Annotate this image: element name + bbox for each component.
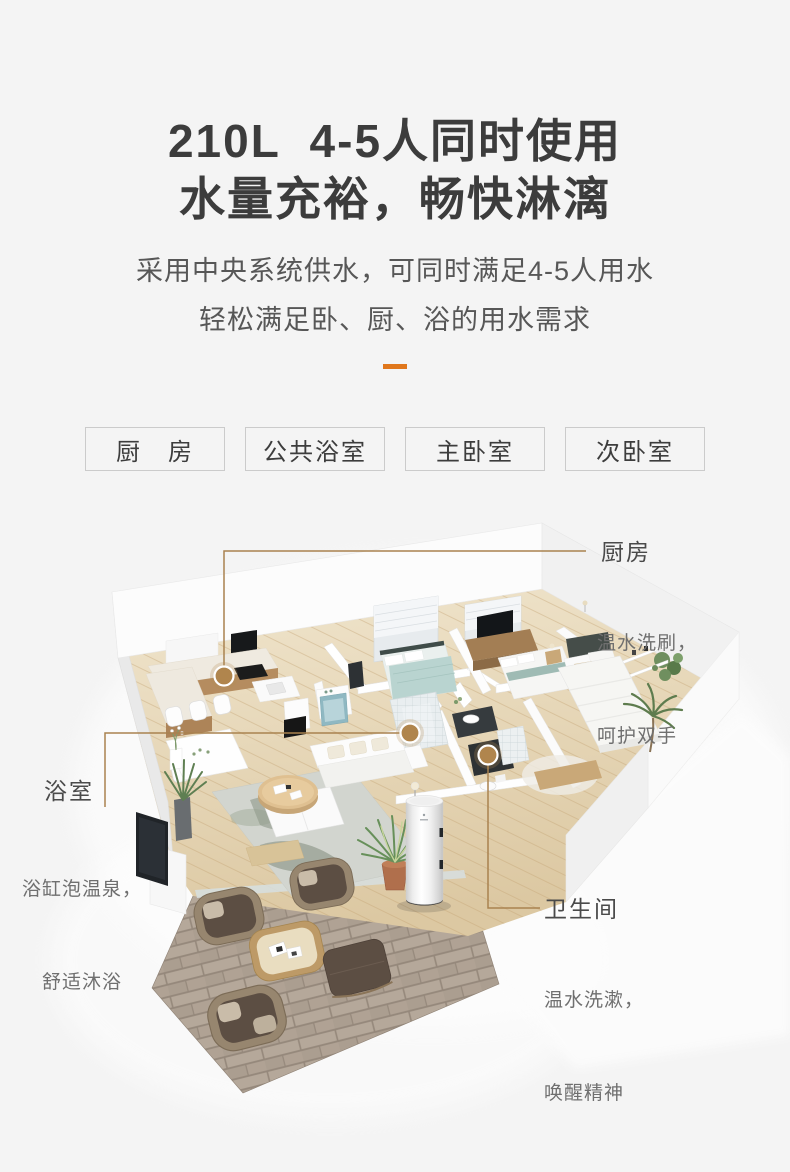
tag-master-bedroom: 主卧室 xyxy=(405,427,545,471)
tag-kitchen: 厨 房 xyxy=(85,427,225,471)
tag-second-bedroom: 次卧室 xyxy=(565,427,705,471)
title-line-1: 210L 4-5人同时使用 xyxy=(0,112,790,170)
description-line-2: 轻松满足卧、厨、浴的用水需求 xyxy=(0,296,790,345)
bathroom-marker xyxy=(396,719,424,747)
toilet-callout-sub: 温水洗漱， 唤醒精神 xyxy=(544,923,644,1140)
toilet-callout-line2: 唤醒精神 xyxy=(544,1078,644,1109)
kitchen-callout-line1: 温水洗刷， xyxy=(597,628,697,659)
tag-public-bathroom: 公共浴室 xyxy=(245,427,385,471)
kitchen-callout-line2: 呵护双手 xyxy=(597,721,697,752)
bathroom-callout-sub: 浴缸泡温泉， 舒适沐浴 xyxy=(6,812,158,1029)
title-line-2: 水量充裕，畅快淋漓 xyxy=(0,170,790,228)
product-detail-page: { "page": { "background": "#f4f4f4", "ac… xyxy=(0,0,790,1172)
bathroom-callout-line2: 舒适沐浴 xyxy=(6,967,158,998)
page-description: 采用中央系统供水，可同时满足4-5人用水 轻松满足卧、厨、浴的用水需求 xyxy=(0,247,790,345)
hallway-sideboard xyxy=(316,685,352,726)
toilet-callout-line1: 温水洗漱， xyxy=(544,985,644,1016)
room-tags: 厨 房 公共浴室 主卧室 次卧室 xyxy=(0,427,790,471)
kitchen-callout-sub: 温水洗刷， 呵护双手 xyxy=(597,566,697,783)
bathroom-callout-title: 浴室 xyxy=(44,772,94,806)
kitchen-callout-title: 厨房 xyxy=(601,533,651,567)
floor-vase xyxy=(174,797,192,841)
page-title: 210L 4-5人同时使用 水量充裕，畅快淋漓 xyxy=(0,112,790,228)
toilet-marker xyxy=(474,741,502,769)
accent-divider xyxy=(383,364,407,369)
kitchen-marker xyxy=(210,662,238,690)
bathroom-callout-line1: 浴缸泡温泉， xyxy=(6,874,158,905)
toilet-callout-title: 卫生间 xyxy=(544,890,619,924)
wardrobe xyxy=(348,661,364,689)
description-line-1: 采用中央系统供水，可同时满足4-5人用水 xyxy=(0,247,790,296)
